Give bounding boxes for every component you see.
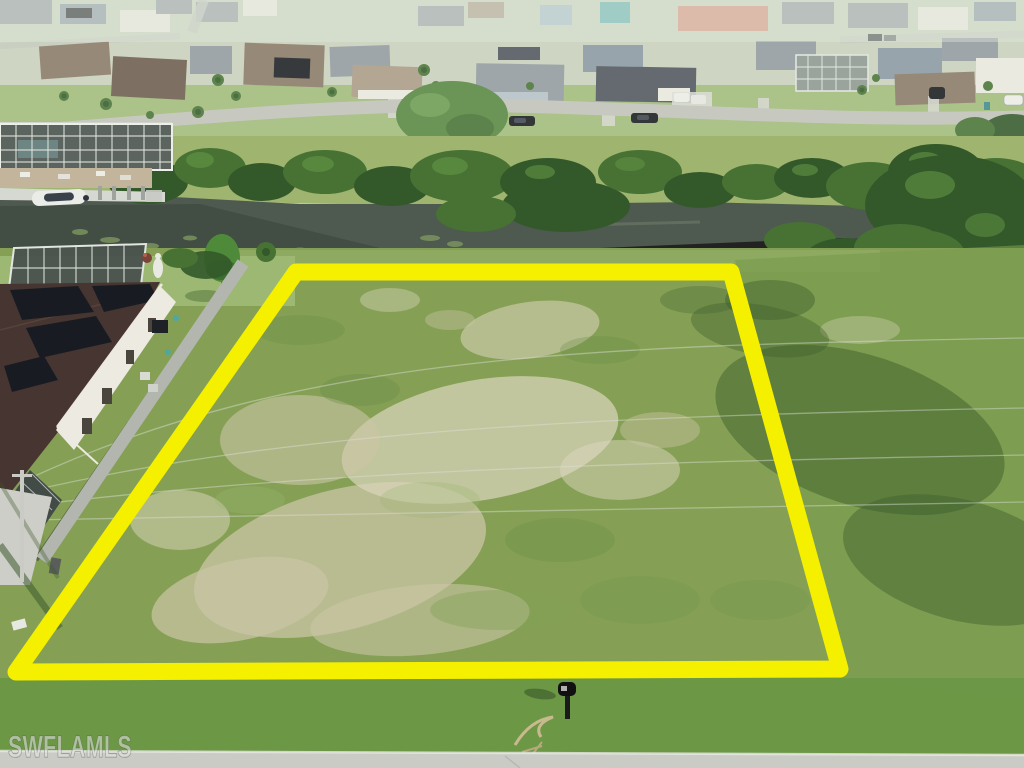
waterfront-deck <box>0 168 152 188</box>
road <box>0 751 1024 768</box>
aerial-scene: SWFLAMLS <box>0 0 1024 768</box>
waterfront-pool-enclosure <box>0 122 172 170</box>
aerial-lot-photo: SWFLAMLS <box>0 0 1024 768</box>
mls-watermark: SWFLAMLS <box>8 729 132 764</box>
bottom-strip <box>0 678 1024 768</box>
